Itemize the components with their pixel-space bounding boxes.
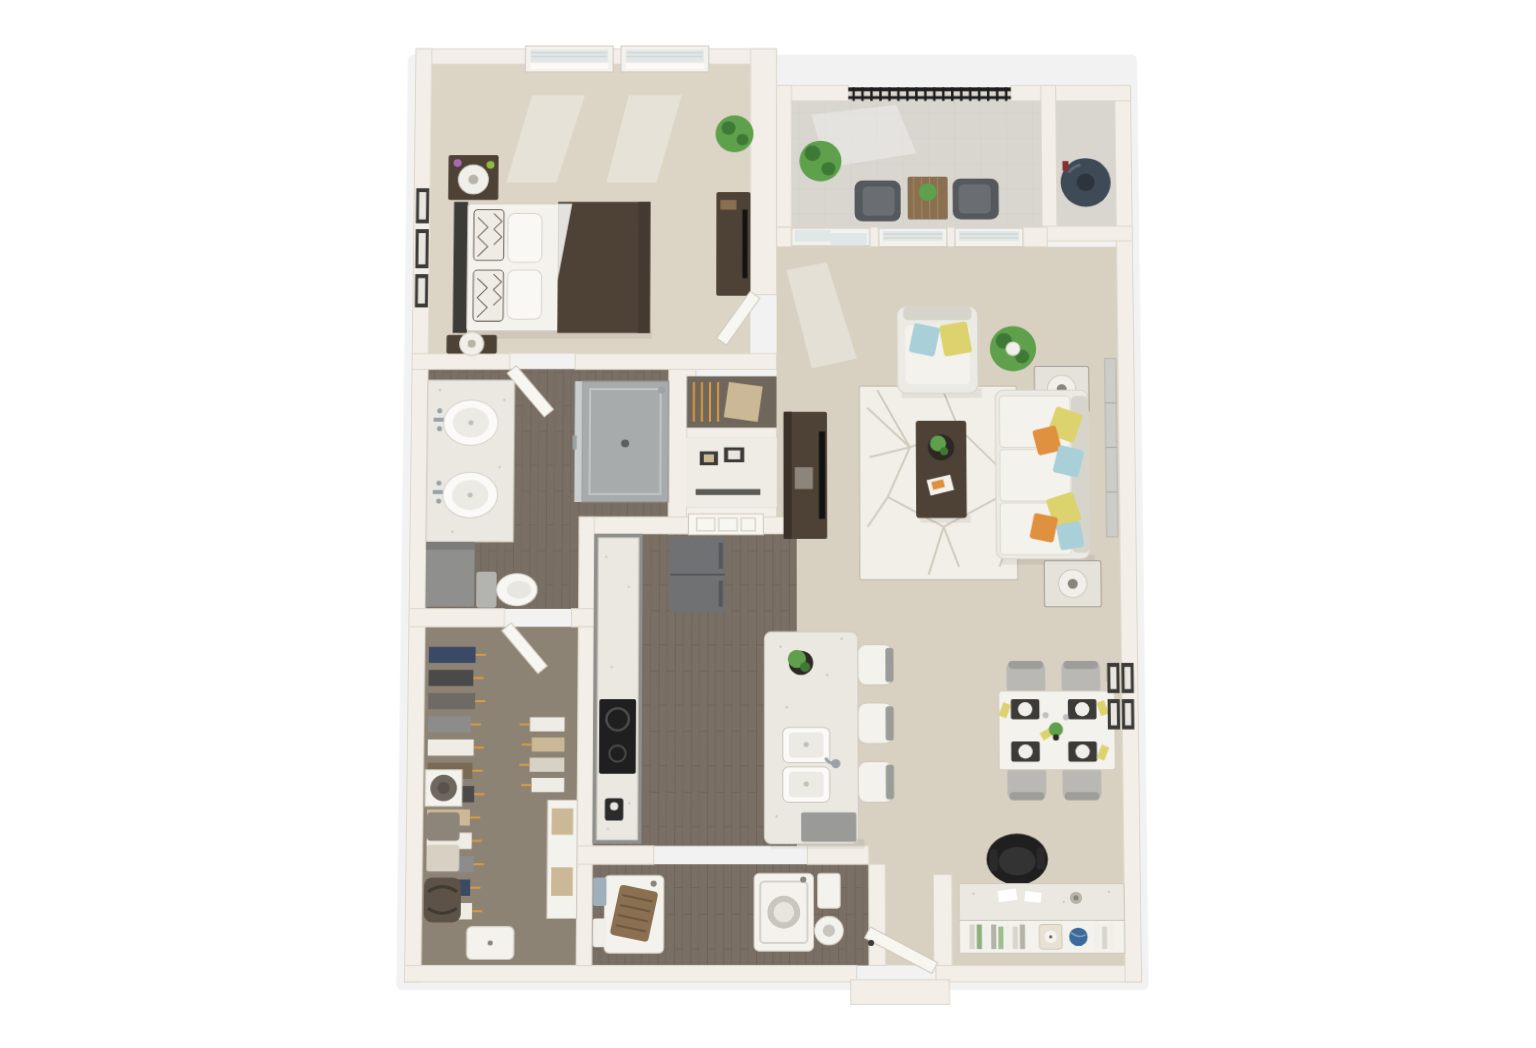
sofa	[995, 390, 1095, 565]
dining-chair	[1007, 766, 1046, 800]
books	[1095, 925, 1115, 950]
laundry-east-wall	[869, 864, 886, 965]
bag	[427, 812, 460, 840]
drain	[621, 439, 629, 447]
nightstand-top	[448, 155, 498, 200]
kitchen-island	[764, 632, 864, 849]
bedroom-plant	[716, 115, 754, 152]
shelf-tower	[547, 800, 578, 918]
nightstand-bottom	[446, 332, 497, 356]
laundry-north-wall-left	[577, 846, 654, 864]
bed	[453, 202, 653, 339]
door-knob	[868, 940, 874, 946]
cooktop	[599, 699, 636, 774]
bar-stools	[858, 645, 894, 802]
paper	[1024, 891, 1041, 903]
shower-head	[658, 387, 665, 394]
armchair	[897, 306, 982, 398]
duffel-bag	[424, 878, 461, 923]
dining-chair	[1061, 661, 1100, 695]
office-chair	[986, 834, 1048, 885]
storage-west-wall	[1041, 85, 1057, 240]
living-window-right	[955, 228, 1023, 247]
storage-box	[818, 873, 841, 908]
yellow-pillow	[939, 321, 972, 357]
dining-table	[998, 691, 1115, 770]
blue-towels	[593, 878, 606, 907]
nook-divider	[687, 428, 777, 438]
folded-shirt	[426, 845, 459, 871]
bedroom-window-right	[621, 46, 709, 72]
balcony-plant	[799, 141, 841, 182]
white-pillow	[508, 214, 542, 263]
double-vanity	[426, 380, 515, 542]
white-pillow	[507, 270, 542, 319]
west-shelf-items	[424, 770, 463, 923]
bedroom-south-wall-left	[412, 354, 510, 370]
coffee-table	[916, 421, 971, 523]
bar-stool	[858, 703, 894, 743]
dining-chair	[1006, 661, 1045, 695]
media-dresser	[716, 192, 750, 296]
headboard	[453, 202, 468, 333]
balcony-chair-left	[855, 180, 901, 221]
south-wall-right	[936, 965, 1142, 981]
bookshelf	[959, 920, 1125, 953]
bedroom-east-wall	[750, 49, 776, 295]
wall-frames	[415, 188, 429, 307]
kitchen-north-wall-left	[579, 517, 688, 534]
toilet-tank	[476, 572, 497, 608]
built-in-desk	[959, 884, 1124, 921]
north-wall-right	[1011, 85, 1131, 100]
walk-in-shower	[572, 381, 669, 502]
faucet	[433, 490, 443, 494]
living-window-left	[879, 228, 947, 247]
floor-plan-svg	[344, 37, 1198, 1023]
faucet	[434, 418, 444, 422]
sliding-glass-door	[792, 228, 870, 246]
blue-pillow	[1056, 521, 1085, 551]
closet-north-wall-left	[409, 609, 505, 627]
washer	[604, 875, 664, 953]
white-towels	[593, 918, 607, 947]
storage-south-wall	[1042, 226, 1132, 241]
bedroom-south-wall-right	[575, 354, 776, 370]
tv-console	[784, 412, 828, 539]
bedroom-window-left	[525, 46, 613, 72]
bath-cabinet	[425, 542, 474, 607]
shelf-nook	[687, 438, 777, 507]
floor-plan	[344, 37, 1198, 1023]
refrigerator	[670, 537, 725, 613]
balcony-chair-right	[953, 179, 999, 220]
hallway-door-closed	[688, 514, 763, 535]
balcony-table	[908, 177, 948, 220]
coat-closet-nook	[687, 376, 777, 427]
dryer	[754, 873, 814, 951]
floor-plan-stage	[0, 0, 1536, 1048]
end-table-bottom	[1044, 561, 1101, 607]
storage-box	[724, 382, 763, 422]
closet-north-wall-right	[571, 609, 593, 627]
balcony-west-wall	[776, 85, 791, 227]
dining-chair	[1062, 766, 1101, 800]
glass-handle	[573, 436, 577, 450]
toilet	[476, 572, 537, 608]
closet-east-wall	[576, 627, 593, 966]
duvet	[557, 202, 650, 333]
valve	[1062, 161, 1068, 171]
box	[552, 808, 574, 834]
striped-pillow	[1029, 513, 1058, 543]
box	[551, 867, 573, 896]
centerpiece	[1049, 722, 1063, 736]
bar-stool	[858, 645, 894, 685]
tv	[742, 210, 747, 278]
dryer-knob	[800, 877, 806, 883]
entry-partition-wall	[933, 874, 952, 965]
bar-stool	[858, 762, 894, 803]
south-wall-left	[404, 965, 856, 981]
cabinet-run	[592, 534, 642, 844]
table-plant	[919, 183, 937, 201]
washer-knob	[651, 881, 657, 887]
coffee-maker	[605, 798, 624, 820]
tv	[819, 432, 825, 519]
dishwasher	[801, 812, 856, 841]
entry-stoop	[851, 980, 950, 1005]
wall-art-panels	[1105, 359, 1118, 537]
